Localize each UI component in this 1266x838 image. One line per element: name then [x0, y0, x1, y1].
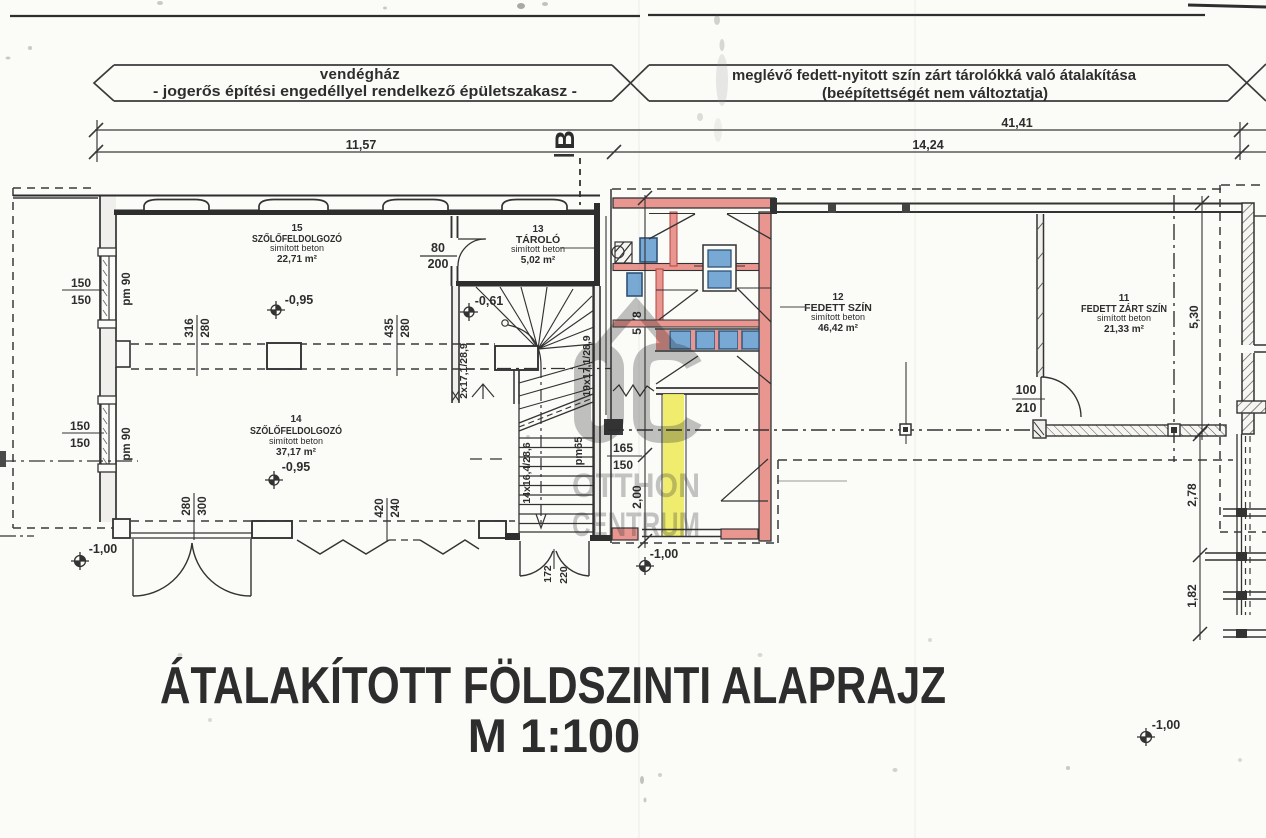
svg-text:CENTRUM: CENTRUM — [572, 506, 700, 544]
svg-text:150: 150 — [71, 276, 91, 290]
svg-text:1,82: 1,82 — [1185, 584, 1199, 608]
svg-text:21,33 m²: 21,33 m² — [1104, 324, 1145, 335]
svg-text:220: 220 — [558, 566, 570, 584]
svg-text:simított beton: simított beton — [270, 243, 324, 253]
svg-text:ÁTALAKÍTOTT FÖLDSZINTI ALAPRAJ: ÁTALAKÍTOTT FÖLDSZINTI ALAPRAJZ — [160, 657, 946, 715]
svg-text:-1,00: -1,00 — [89, 542, 118, 556]
svg-text:240: 240 — [390, 498, 402, 517]
svg-text:OTTHON: OTTHON — [572, 467, 700, 505]
svg-text:2x17,1/28,9: 2x17,1/28,9 — [458, 343, 470, 399]
svg-text:37,17 m²: 37,17 m² — [276, 447, 317, 458]
svg-text:80: 80 — [431, 241, 445, 255]
svg-text:5,02 m²: 5,02 m² — [521, 255, 556, 266]
svg-text:150: 150 — [71, 293, 91, 307]
svg-text:46,42 m²: 46,42 m² — [818, 323, 859, 334]
svg-text:5,30: 5,30 — [1187, 305, 1201, 329]
svg-text:M 1:100: M 1:100 — [468, 709, 640, 762]
svg-text:- jogerős építési engedéllyel: - jogerős építési engedéllyel rendelkező… — [153, 84, 577, 100]
svg-text:316: 316 — [184, 318, 196, 337]
svg-text:280: 280 — [400, 318, 412, 337]
svg-text:14: 14 — [290, 414, 302, 425]
svg-text:150: 150 — [70, 419, 90, 433]
svg-text:280: 280 — [200, 318, 212, 337]
svg-text:280: 280 — [181, 496, 193, 515]
svg-text:-0,61: -0,61 — [475, 294, 504, 308]
svg-text:meglévő fedett-nyitott szín zá: meglévő fedett-nyitott szín zárt tárolók… — [732, 68, 1137, 84]
svg-text:simított beton: simított beton — [1097, 313, 1151, 323]
svg-text:simított beton: simított beton — [811, 312, 865, 322]
svg-text:-1,00: -1,00 — [650, 547, 679, 561]
svg-text:435: 435 — [384, 318, 396, 338]
svg-text:(beépítettségét nem változtatj: (beépítettségét nem változtatja) — [822, 86, 1048, 102]
svg-text:172: 172 — [542, 565, 554, 583]
svg-text:-1,00: -1,00 — [1152, 718, 1181, 732]
svg-text:pm 90: pm 90 — [121, 427, 133, 460]
svg-text:14,24: 14,24 — [912, 138, 943, 152]
svg-text:2,78: 2,78 — [1185, 483, 1199, 507]
svg-text:simított beton: simított beton — [269, 436, 323, 446]
svg-text:-0,95: -0,95 — [282, 460, 311, 474]
svg-text:150: 150 — [70, 436, 90, 450]
svg-text:210: 210 — [1016, 401, 1037, 415]
svg-text:pm 90: pm 90 — [121, 272, 133, 305]
svg-text:simított beton: simított beton — [511, 244, 565, 254]
svg-text:41,41: 41,41 — [1001, 116, 1032, 130]
svg-text:14x16,4/28,6: 14x16,4/28,6 — [521, 442, 533, 503]
svg-text:B: B — [550, 130, 580, 150]
svg-text:100: 100 — [1016, 383, 1037, 397]
svg-text:11,57: 11,57 — [346, 138, 377, 152]
svg-text:420: 420 — [374, 498, 386, 517]
svg-text:22,71 m²: 22,71 m² — [277, 254, 318, 265]
svg-text:-0,95: -0,95 — [285, 293, 314, 307]
svg-text:165: 165 — [613, 441, 633, 455]
svg-text:vendégház: vendégház — [320, 66, 400, 83]
svg-text:pm65: pm65 — [573, 437, 585, 466]
svg-text:200: 200 — [428, 257, 449, 271]
svg-text:300: 300 — [197, 496, 209, 515]
